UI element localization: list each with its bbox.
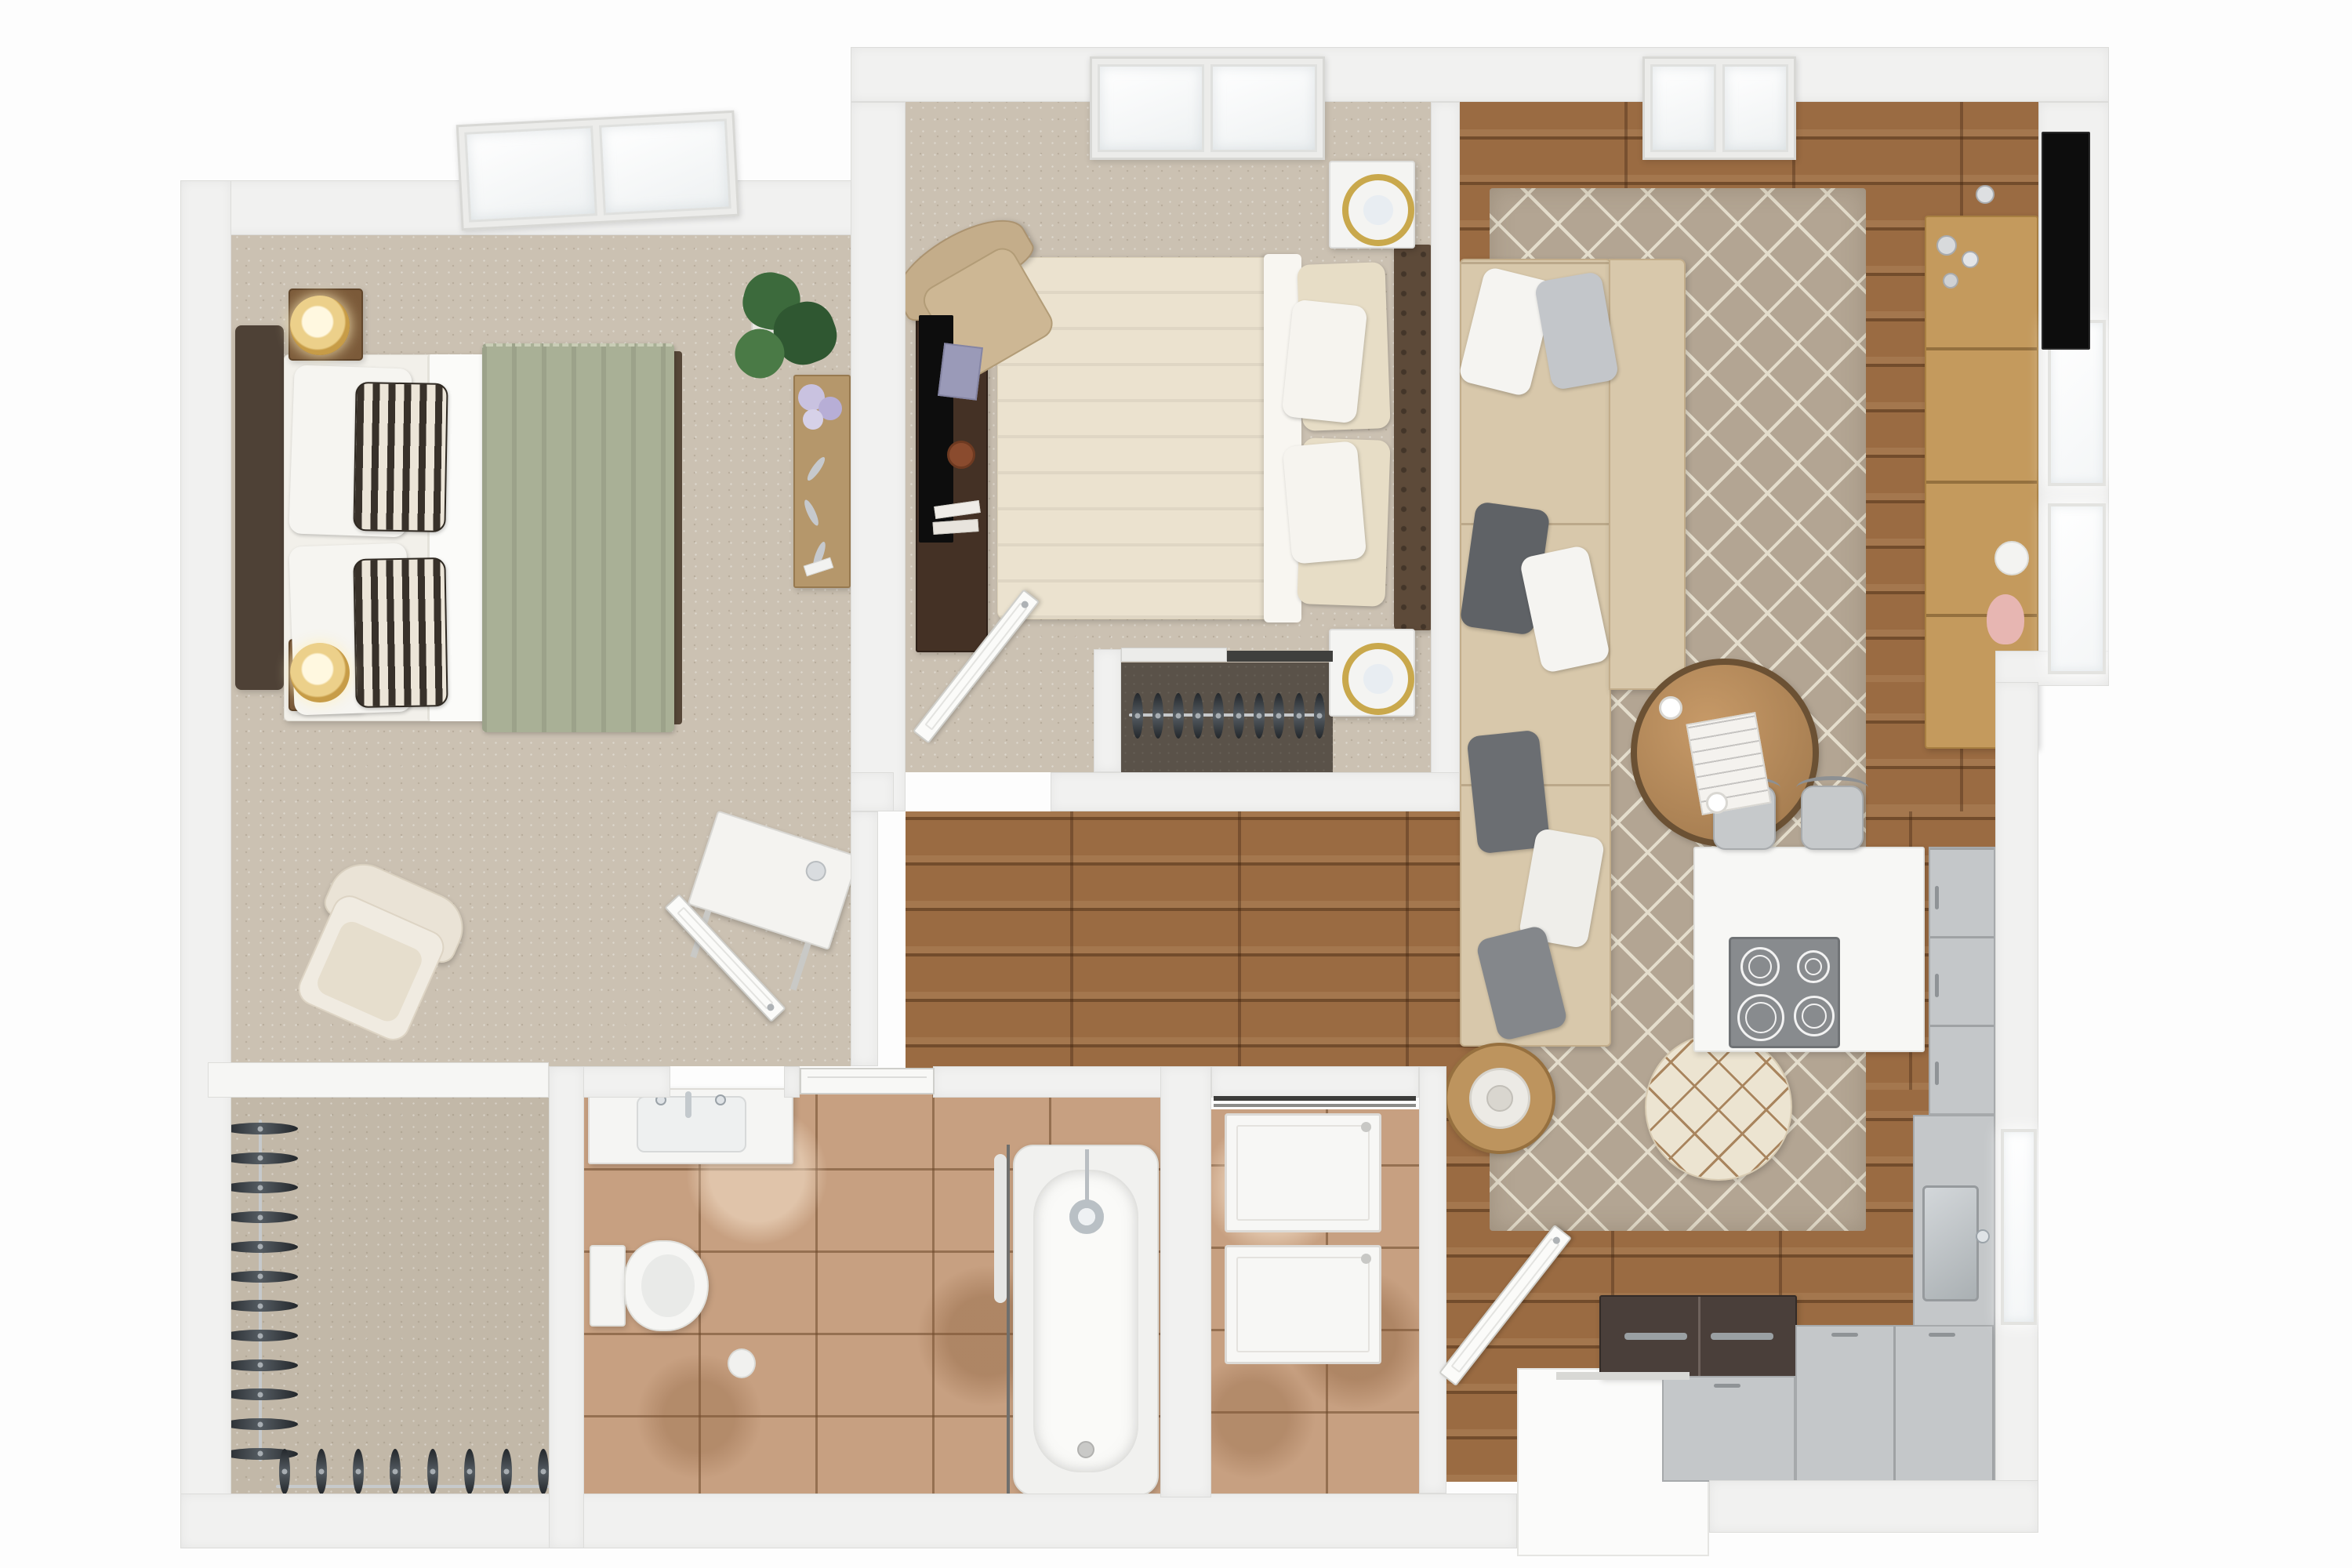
wall-bedroom2-bottom-a [851, 772, 894, 811]
master-skylight [456, 111, 740, 230]
living-room-skylight [1642, 56, 1796, 160]
pink-vase [1987, 594, 2024, 644]
stool-seat [1801, 786, 1864, 850]
washer-lid [1236, 1125, 1370, 1221]
toilet-tank [590, 1245, 626, 1327]
burner [1794, 996, 1835, 1036]
burner [1737, 994, 1784, 1041]
tub-drain [1077, 1441, 1094, 1458]
apartment-floor-plan [0, 0, 2352, 1568]
wall-closet-bathroom [549, 1066, 584, 1548]
wall-bedroom2-bottom-b [1051, 772, 1460, 811]
candle [1976, 185, 1994, 204]
clothes-hanger-icon [223, 1359, 298, 1371]
vanity-sink [637, 1096, 746, 1152]
skylight-glass [464, 125, 597, 222]
wall-kitchen-right [1995, 682, 2038, 1533]
cabinet-handle [1935, 1062, 1939, 1085]
clothes-hanger-icon [223, 1388, 298, 1400]
kitchen-faucet [1976, 1229, 1990, 1243]
wall-master-right-lower [851, 811, 878, 1066]
wall-left [180, 180, 231, 1548]
skylight-glass [1210, 64, 1317, 152]
bedroom2-lamp-top [1342, 174, 1414, 246]
laundry-door-track [1214, 1096, 1416, 1101]
living-window-lower [2048, 503, 2106, 674]
cabinet-handle [1935, 974, 1939, 997]
clothes-hanger-icon [1314, 693, 1325, 739]
clothes-hanger-icon [1152, 693, 1163, 739]
hydrangea-flowers [803, 409, 823, 430]
clothes-hanger-icon [464, 1449, 475, 1494]
clothes-hanger-icon [1173, 693, 1184, 739]
sofa-sectional-chaise [1609, 259, 1686, 690]
fridge-handle [1711, 1333, 1773, 1340]
skylight-glass [1098, 64, 1204, 152]
clothes-hanger-icon [316, 1449, 327, 1494]
closet-partition-wall [1094, 649, 1121, 772]
flower-trinket-dish [1994, 541, 2029, 575]
clothes-hanger-icon [279, 1449, 290, 1494]
fridge-door-split [1698, 1297, 1700, 1377]
laundry-door-track [1214, 1104, 1416, 1107]
dryer [1225, 1245, 1381, 1364]
clothes-hanger-icon [223, 1241, 298, 1253]
clothes-hanger-icon [501, 1449, 512, 1494]
clothes-hanger-icon [1254, 693, 1265, 739]
burner [1740, 947, 1780, 986]
toilet-seat [641, 1254, 695, 1317]
side-table-candle [1486, 1085, 1513, 1112]
kitchen-base-cabinets-corner [1795, 1325, 1995, 1482]
master-lamp-bottom [290, 643, 350, 702]
clothes-hanger-icon [1233, 693, 1244, 739]
desk-leg [790, 942, 811, 990]
closet-hanger-rack-side [223, 1123, 298, 1460]
bedroom2-hanger-rack [1132, 693, 1325, 739]
wall-laundry-right [1419, 1066, 1446, 1494]
master-lamp-top [290, 296, 350, 355]
clothes-hanger-icon [353, 1449, 364, 1494]
skylight-glass [1650, 64, 1716, 152]
fridge-handle [1624, 1333, 1687, 1340]
wall-bathroom-top-b [784, 1066, 800, 1098]
closet-shelf [208, 1062, 549, 1098]
clothes-hanger-icon [223, 1271, 298, 1283]
kitchen-tall-cabinets [1929, 847, 1995, 1115]
bathroom-pocket-door [800, 1068, 935, 1094]
wall-top [851, 47, 2109, 102]
faucet-handle [715, 1094, 726, 1105]
dryer-lid [1236, 1257, 1370, 1352]
clothes-hanger-icon [223, 1300, 298, 1312]
washer [1225, 1113, 1381, 1232]
candle [1962, 251, 1979, 268]
clothes-hanger-icon [1273, 693, 1284, 739]
wall-bottom-right [1709, 1480, 2038, 1533]
clothes-hanger-icon [1132, 693, 1143, 739]
shower-curtain [994, 1154, 1007, 1303]
master-pillow-striped-2 [353, 557, 448, 708]
shower-hose [1085, 1149, 1089, 1201]
wall-bedroom2-living [1431, 102, 1460, 811]
dryer-dial [1361, 1254, 1371, 1264]
bar-stool [1801, 786, 1864, 850]
toilet-paper-roll [728, 1348, 756, 1378]
burner [1797, 950, 1830, 983]
cabinet-handle [1714, 1384, 1740, 1388]
cabinet-handle [1929, 1333, 1955, 1337]
candle [1936, 235, 1957, 256]
clothes-hanger-icon [538, 1449, 549, 1494]
bedroom2-lamp-bottom [1342, 643, 1414, 715]
bedroom2-pillow-white-1 [1281, 299, 1367, 423]
wall-master-right [851, 102, 906, 811]
skylight-glass [598, 118, 731, 215]
bedroom2-headboard [1394, 245, 1433, 630]
bedroom2-skylight [1090, 56, 1325, 160]
cabinet-handle [1831, 1333, 1858, 1337]
bedroom2-pillow-white-2 [1283, 441, 1367, 564]
kitchen-base-cabinet [1662, 1376, 1795, 1482]
clothes-hanger-icon [427, 1449, 438, 1494]
master-pillow-striped-1 [353, 382, 448, 532]
shower-curtain-rod [1007, 1145, 1010, 1496]
kitchen-sink [1922, 1185, 1979, 1301]
refrigerator [1599, 1295, 1797, 1378]
entry-threshold [1556, 1372, 1690, 1380]
coffee-cup [1659, 696, 1682, 720]
clothes-hanger-icon [223, 1330, 298, 1341]
wall-tv [2042, 132, 2090, 350]
wall-bathroom-right [1160, 1066, 1211, 1497]
clothes-hanger-icon [223, 1418, 298, 1430]
clothes-hanger-icon [223, 1211, 298, 1223]
washer-dial [1361, 1122, 1371, 1132]
kitchen-window [2001, 1129, 2037, 1325]
closet-sliding-door [1121, 648, 1227, 662]
pouf-ottoman [1645, 1033, 1792, 1181]
clothes-hanger-icon [1294, 693, 1305, 739]
clothes-hanger-icon [223, 1123, 298, 1134]
candle [1943, 273, 1958, 289]
book-stack [938, 343, 983, 401]
coffee-cup [1706, 792, 1728, 814]
master-bed-blanket [482, 343, 674, 732]
clothes-hanger-icon [1192, 693, 1203, 739]
clothes-hanger-icon [223, 1181, 298, 1193]
clothes-hanger-icon [1213, 693, 1224, 739]
skylight-glass [1722, 64, 1788, 152]
handheld-shower-head [1069, 1200, 1104, 1234]
door-panel-line [808, 1076, 927, 1078]
decor-bowl [947, 441, 975, 469]
cooktop [1729, 937, 1840, 1048]
clothes-hanger-icon [223, 1152, 298, 1164]
clothes-hanger-icon [390, 1449, 401, 1494]
wall-bottom-left [180, 1494, 1517, 1548]
wall-laundry-top [1211, 1066, 1419, 1098]
cabinet-handle [1935, 886, 1939, 909]
master-bed-headboard [235, 325, 284, 690]
faucet-spout [685, 1091, 691, 1118]
closet-sliding-door [1227, 651, 1333, 662]
